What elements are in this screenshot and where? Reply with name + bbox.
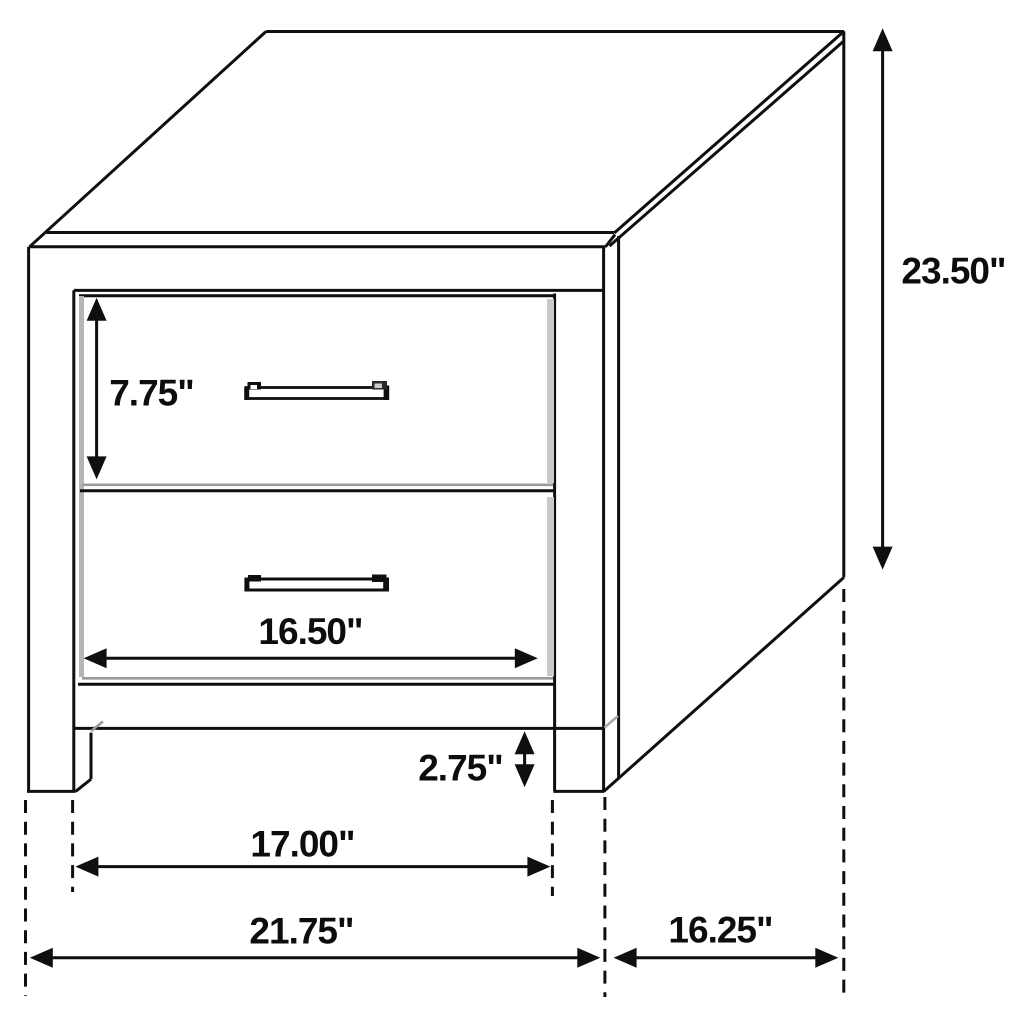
svg-text:17.00": 17.00"	[250, 824, 354, 865]
svg-text:16.50": 16.50"	[258, 611, 362, 652]
svg-text:16.25": 16.25"	[668, 910, 772, 951]
svg-text:21.75": 21.75"	[249, 911, 353, 952]
svg-text:2.75": 2.75"	[418, 748, 503, 789]
svg-text:23.50": 23.50"	[901, 251, 1005, 292]
svg-text:7.75": 7.75"	[109, 373, 194, 414]
